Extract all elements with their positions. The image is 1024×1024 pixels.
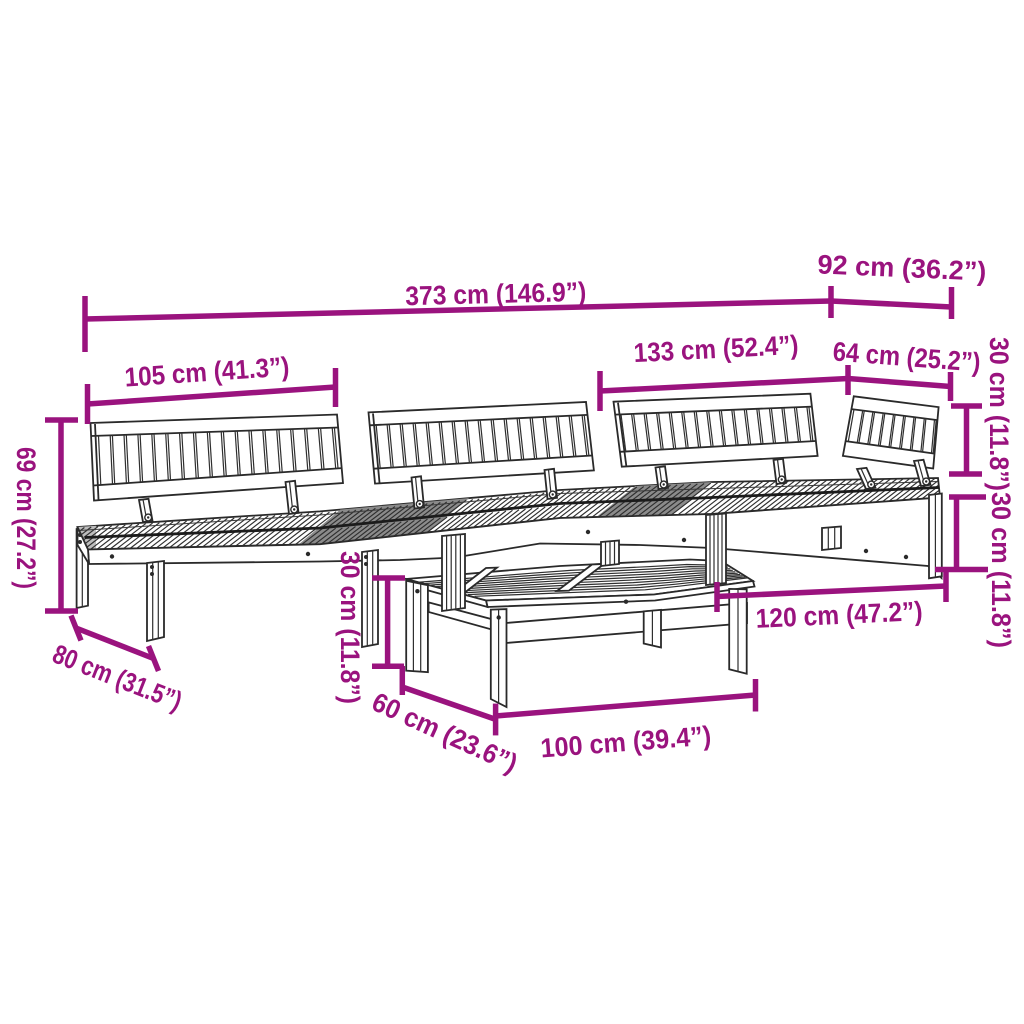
svg-text:30 cm (11.8”): 30 cm (11.8”) (335, 551, 365, 704)
svg-text:373 cm (146.9”): 373 cm (146.9”) (405, 277, 587, 311)
svg-text:69 cm (27.2”): 69 cm (27.2”) (11, 447, 41, 589)
svg-text:30 cm (11.8”): 30 cm (11.8”) (986, 492, 1016, 648)
svg-text:30 cm (11.8”): 30 cm (11.8”) (984, 337, 1014, 491)
